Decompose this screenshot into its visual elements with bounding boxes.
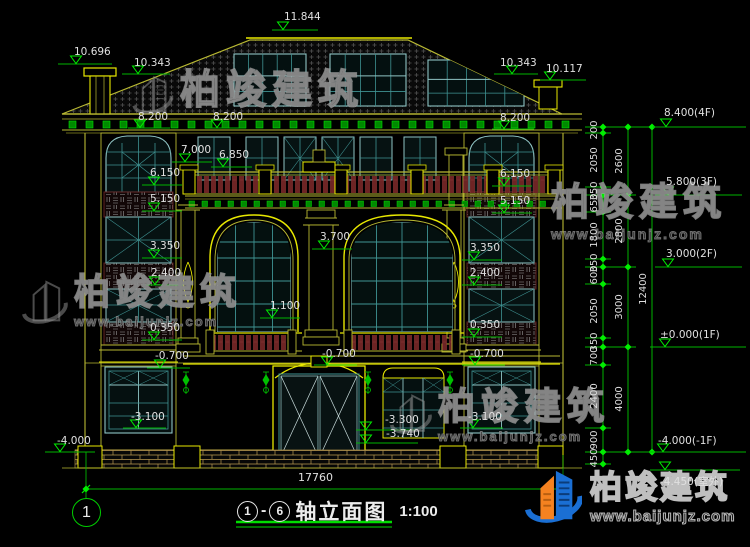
axis-bubble-to: 6: [269, 501, 290, 522]
dimension-value: 12400: [639, 273, 649, 305]
dimension-value: 700: [590, 346, 600, 365]
side-window-column: [99, 133, 178, 450]
axis-bubble-1: 1: [72, 498, 101, 527]
level-marker-label: 8.200: [213, 112, 243, 123]
level-marker-label: 0.350: [150, 323, 180, 334]
level-marker-label: 6.850: [219, 150, 249, 161]
brand-footer: 柏竣建筑 www.baijunjz.com: [524, 462, 735, 532]
level-marker-label: 0.350: [470, 320, 500, 331]
dimension-value: 450: [590, 448, 600, 467]
level-marker-label: -4.000(-1F): [658, 436, 717, 447]
dimension-value: 650: [590, 193, 600, 212]
level-marker-label: 10.696: [74, 47, 111, 58]
dimension-value: 4000: [615, 386, 625, 411]
level-marker-label: -0.700: [470, 349, 504, 360]
dimension-value: 2050: [590, 298, 600, 323]
dimension-value: 1800: [590, 222, 600, 247]
drawing-title: 1 - 6 轴立面图 1:100: [237, 496, 438, 526]
level-marker-label: 2.400: [470, 268, 500, 279]
level-marker-label: 7.000: [181, 145, 211, 156]
level-marker-label: -0.700: [322, 349, 356, 360]
level-marker-label: 6.150: [150, 168, 180, 179]
level-marker-label: 8.200: [138, 112, 168, 123]
level-marker-label: ±0.000(1F): [660, 330, 720, 341]
level-marker-label: 11.844: [284, 12, 321, 23]
level-marker-label: 3.700: [320, 232, 350, 243]
level-marker-label: 5.150: [150, 194, 180, 205]
level-marker-label: 6.150: [500, 169, 530, 180]
axis-range-dash: -: [261, 502, 266, 520]
title-scale: 1:100: [399, 503, 437, 520]
level-marker-label: 1.100: [270, 301, 300, 312]
level-marker-label: -3.100: [468, 412, 502, 423]
dimension-value: 900: [590, 430, 600, 449]
level-marker-label: 10.343: [134, 58, 171, 69]
dimension-value: 3000: [615, 294, 625, 319]
dimension-value: 2050: [590, 147, 600, 172]
brand-url-text: www.baijunjz.com: [590, 509, 735, 524]
brand-logo-icon: [524, 462, 582, 532]
level-marker-label: 2.400: [151, 268, 181, 279]
level-marker-label: 10.343: [500, 58, 537, 69]
level-marker-label: -3.300: [385, 415, 419, 426]
dimension-value: 600: [590, 265, 600, 284]
level-marker-label: -4.450(室外): [660, 477, 723, 488]
dimension-value: 2800: [615, 218, 625, 243]
level-marker-label: 5.150: [500, 196, 530, 207]
axis-bubble-from: 1: [237, 501, 258, 522]
attic-windows: [234, 54, 524, 106]
roof: [62, 38, 562, 114]
level-marker-label: -4.000: [57, 436, 91, 447]
grand-arch-window: [340, 215, 464, 333]
level-marker-label: -3.740: [386, 429, 420, 440]
grand-arch-window: [206, 215, 302, 333]
title-text: 轴立面图: [295, 496, 387, 526]
level-marker-label: 3.350: [150, 241, 180, 252]
dimension-value: 2400: [590, 383, 600, 408]
level-marker-label: 10.117: [546, 64, 583, 75]
level-marker-label: 8.200: [500, 113, 530, 124]
cad-drawing-canvas: 柏竣建筑 柏竣建筑 www.baijunjz.com 柏竣建筑 www.baij…: [0, 0, 750, 547]
level-marker-label: 3.000(2F): [666, 249, 717, 260]
dimension-value: 2600: [615, 148, 625, 173]
level-marker-label: -0.700: [155, 351, 189, 362]
level-marker-label: 3.350: [470, 243, 500, 254]
level-marker-label: 5.800(3F): [666, 177, 717, 188]
level-marker-label: -3.100: [131, 412, 165, 423]
level-marker-label: 8.400(4F): [664, 108, 715, 119]
dimension-value: 200: [590, 120, 600, 139]
overall-width-dimension: 17760: [298, 472, 333, 483]
